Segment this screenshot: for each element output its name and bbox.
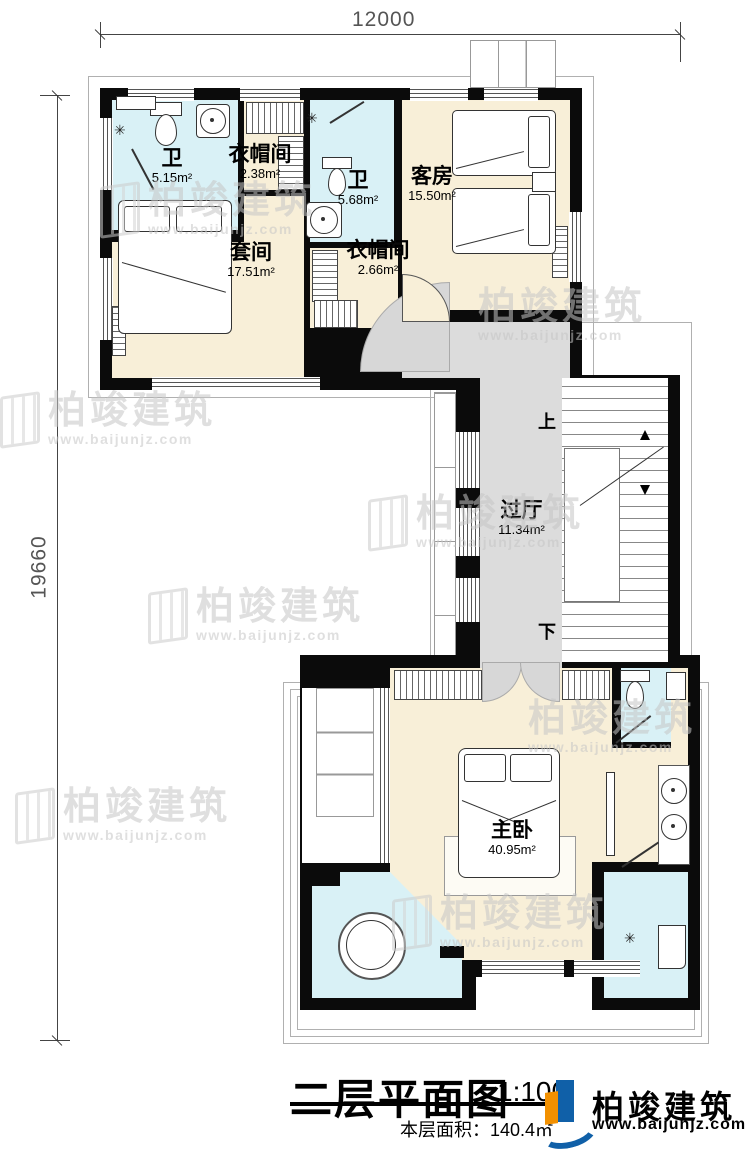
cloak1-rack-top xyxy=(246,102,304,134)
company-logo-icon xyxy=(540,1078,588,1142)
watermark-logo-icon xyxy=(0,391,40,449)
window-top-2 xyxy=(240,88,300,101)
dim-label-left: 19660 xyxy=(28,535,52,598)
label-cloak-1: 衣帽间 2.38m² xyxy=(210,144,310,181)
dim-line-top xyxy=(100,34,680,35)
window-left-1 xyxy=(100,118,113,190)
label-suite: 套间 17.51m² xyxy=(205,242,297,279)
cloak2-rack-bottom xyxy=(314,300,358,328)
stairs-arrow-down xyxy=(640,485,650,495)
washer-1-dot xyxy=(210,118,214,122)
watermark-logo-icon xyxy=(15,787,55,845)
master-wardrobe-1 xyxy=(394,670,482,700)
stairs-up-label: 上 xyxy=(538,408,556,434)
master-bed-pillow-2 xyxy=(510,754,552,782)
label-bath-2: 卫 5.68m² xyxy=(318,170,398,207)
watermark: 柏竣建筑 www.baijunjz.com xyxy=(148,588,364,644)
window-hall-3 xyxy=(456,578,480,622)
toilet-1-bowl xyxy=(155,114,177,146)
shower-wall-left xyxy=(592,862,604,1010)
label-guest: 客房 15.50m² xyxy=(388,166,476,203)
roof-box xyxy=(470,40,556,88)
stairs-arrow-up xyxy=(640,430,650,440)
title-underline xyxy=(290,1102,554,1106)
window-suite-bottom xyxy=(152,377,320,390)
window-master-bottom-2 xyxy=(574,960,640,977)
tub-wall-stub-1 xyxy=(300,872,340,886)
watermark-logo-icon xyxy=(368,494,408,552)
dim-label-top: 12000 xyxy=(352,8,415,32)
tub-wall-stub-2 xyxy=(440,946,464,958)
balcony-cells xyxy=(316,688,374,817)
window-right-guest xyxy=(569,212,582,282)
guest-bed-1-pillow xyxy=(528,116,550,168)
toilet-3-bowl xyxy=(626,681,644,709)
label-master: 主卧 40.95m² xyxy=(462,820,562,857)
window-hall-1 xyxy=(456,432,480,488)
stairs-down-label: 下 xyxy=(538,618,556,644)
dim-ext-top-right xyxy=(680,22,681,62)
bath1-shelf xyxy=(116,96,156,110)
watermark: 柏竣建筑 www.baijunjz.com xyxy=(15,788,231,844)
suite-bed-pillow-1 xyxy=(124,206,170,232)
label-hall: 过厅 11.34m² xyxy=(474,500,569,537)
stairs-landing xyxy=(564,448,620,602)
company-url: www.baijunjz.com xyxy=(592,1116,746,1134)
window-top-3 xyxy=(410,88,468,101)
label-bath-1: 卫 5.15m² xyxy=(132,148,212,185)
hall-sill-boxes xyxy=(434,392,456,690)
sprinkler-icon-1: ✳ xyxy=(114,122,126,139)
master-bed-pillow-1 xyxy=(464,754,506,782)
floor-area-label: 本层面积：140.4㎡ xyxy=(400,1116,553,1142)
sink-1-drain xyxy=(671,788,675,792)
floor-plan: ✳ ✳ ✳ ⊕ ⊕ ⊕ 卫 5.15m² 衣帽间 2.38m² 卫 5.68m²… xyxy=(0,0,750,1148)
label-cloak-2: 衣帽间 2.66m² xyxy=(328,240,428,277)
master-wardrobe-2 xyxy=(562,670,610,700)
toilet-niche xyxy=(666,672,686,700)
window-master-bottom-1 xyxy=(482,960,564,977)
dim-line-left xyxy=(57,95,58,1040)
sink-2-drain xyxy=(671,824,675,828)
sprinkler-icon-3: ✳ xyxy=(624,930,636,947)
round-tub-inner xyxy=(346,920,396,970)
master-left-window xyxy=(377,688,390,863)
mirror-panel xyxy=(606,772,615,856)
shower-niche xyxy=(658,925,686,969)
washer-2-dot xyxy=(321,217,325,221)
suite-bed-pillow-2 xyxy=(176,206,222,232)
window-top-4 xyxy=(484,88,538,101)
watermark-logo-icon xyxy=(148,587,188,645)
guest-nightstand xyxy=(532,172,556,192)
sprinkler-icon-2: ✳ xyxy=(306,110,318,127)
watermark: 柏竣建筑 www.baijunjz.com xyxy=(0,392,216,448)
guest-bed-2-pillow xyxy=(528,194,550,246)
